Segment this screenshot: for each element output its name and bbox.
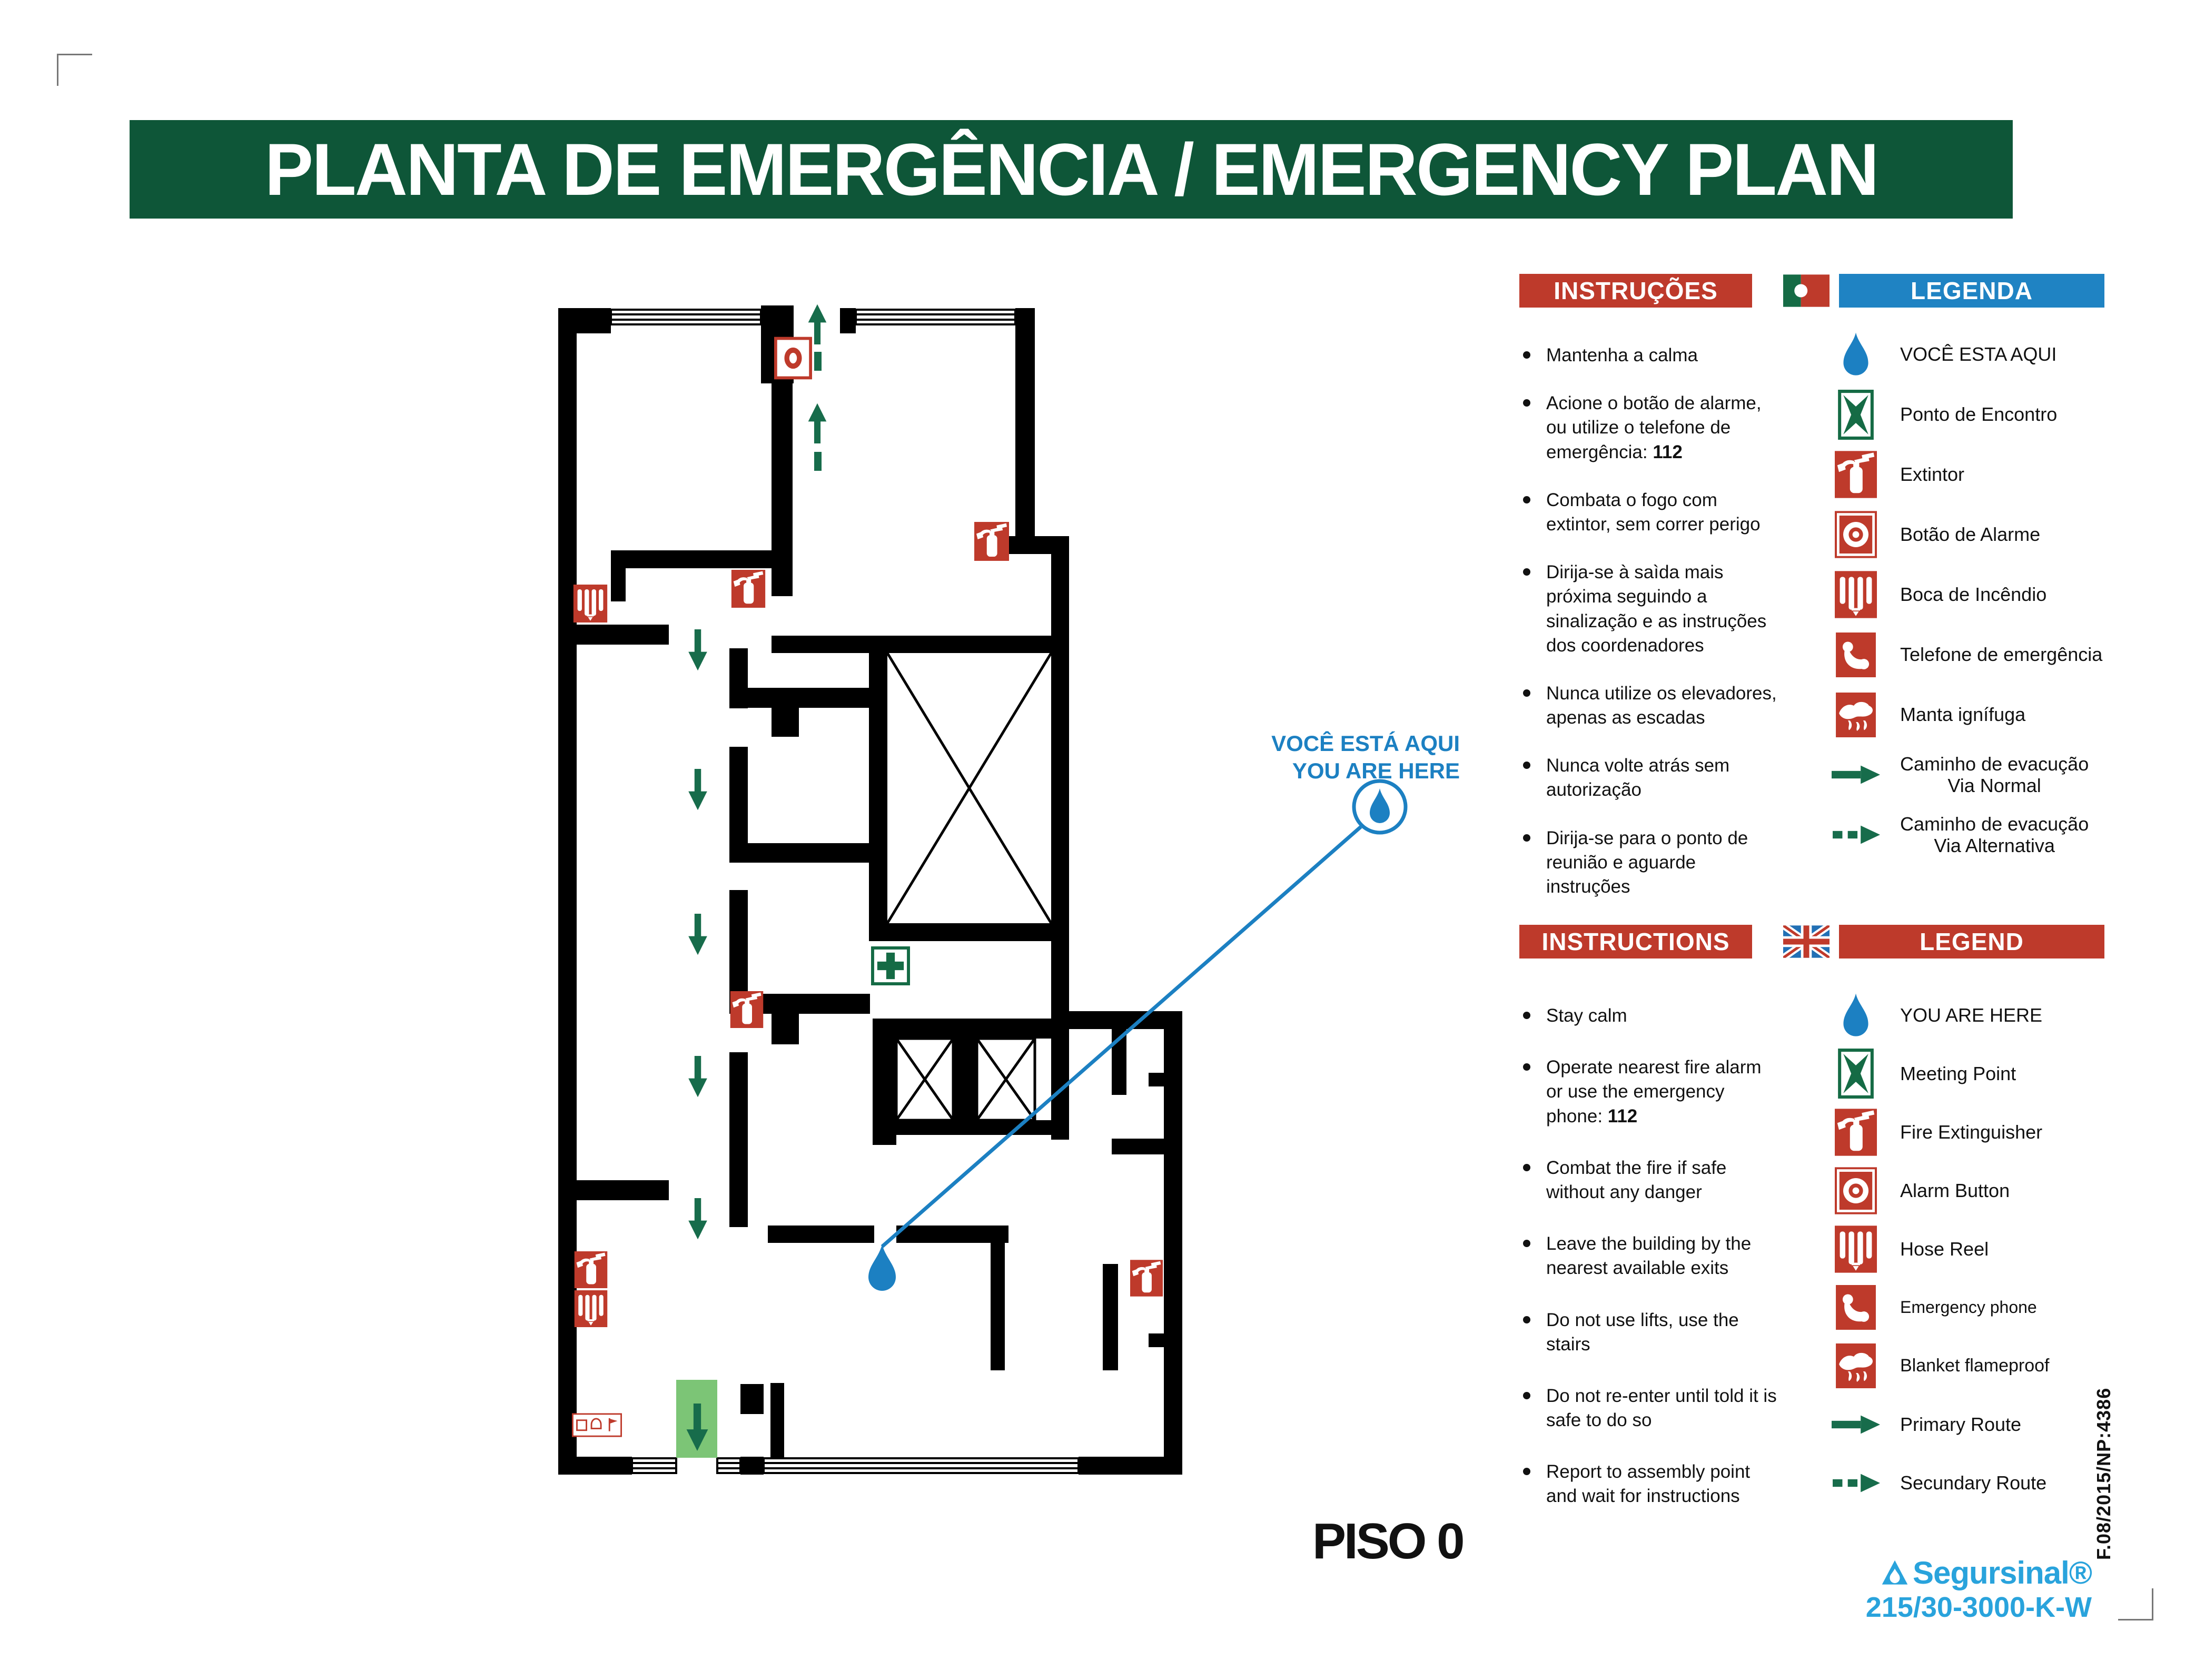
primary-route-arrow-icon xyxy=(1832,765,1880,784)
secondary-route-arrow-icon xyxy=(1832,825,1880,844)
secondary-route-arrow-icon xyxy=(1832,1474,1880,1493)
list-item: Stay calm xyxy=(1523,1004,1777,1028)
alarm-button-icon xyxy=(776,339,810,378)
instructions-pt-list: Mantenha a calma Acione o botão de alarm… xyxy=(1523,343,1777,923)
emergency-plan-poster: PLANTA DE EMERGÊNCIA / EMERGENCY PLAN xyxy=(0,0,2205,1680)
list-item: Do not re-enter until told it is safe to… xyxy=(1523,1384,1777,1432)
emergency-phone-icon xyxy=(1832,633,1880,677)
list-item: Acione o botão de alarme, ou utilize o t… xyxy=(1523,391,1777,465)
bullet-icon xyxy=(1523,834,1530,842)
list-item: Do not use lifts, use the stairs xyxy=(1523,1308,1777,1357)
bullet-icon xyxy=(1523,1240,1530,1247)
legend-pt-header: LEGENDA xyxy=(1839,274,2104,308)
list-item: Mantenha a calma xyxy=(1523,343,1777,368)
floor-label: PISO 0 xyxy=(1312,1513,1462,1570)
document-reference: F.08/2015/NP:4386 xyxy=(2093,1388,2115,1560)
legend-row: Telefone de emergência xyxy=(1832,625,2137,685)
fire-extinguisher-icon xyxy=(974,522,1009,561)
primary-route-arrow-icon xyxy=(1832,1415,1880,1434)
you-are-here-marker xyxy=(868,1244,896,1291)
bullet-icon xyxy=(1523,1063,1530,1071)
windows xyxy=(611,310,1079,1473)
alarm-button-icon xyxy=(1832,1167,1880,1214)
meeting-point-icon xyxy=(1832,390,1880,440)
bullet-icon xyxy=(1523,1012,1530,1019)
list-item: Combat the fire if safe without any dang… xyxy=(1523,1156,1777,1204)
bullet-icon xyxy=(1523,399,1530,407)
list-item: Combata o fogo com extintor, sem correr … xyxy=(1523,488,1777,537)
brand-block: Segursinal® 215/30-3000-K-W xyxy=(1864,1555,2092,1624)
fire-extinguisher-icon xyxy=(575,1251,608,1288)
legend-en-header: LEGEND xyxy=(1839,925,2104,958)
legend-row: Fire Extinguisher xyxy=(1832,1103,2137,1161)
legend-en-list: YOU ARE HERE Meeting Point Fire Extingui… xyxy=(1832,986,2137,1512)
fire-extinguisher-icon xyxy=(731,570,765,608)
floor-plan: VOCÊ ESTÁ AQUI YOU ARE HERE xyxy=(553,300,1469,1506)
first-aid-icon xyxy=(873,948,908,984)
list-item: Nunca utilize os elevadores, apenas as e… xyxy=(1523,681,1777,730)
legend-row: Caminho de evacuçãoVia Alternativa xyxy=(1832,805,2137,865)
bullet-icon xyxy=(1523,568,1530,576)
alarm-button-icon xyxy=(1832,511,1880,558)
alarm-devices-panel-icon xyxy=(572,1414,621,1436)
legend-row: VOCÊ ESTA AQUI xyxy=(1832,324,2137,384)
callout-line1: VOCÊ ESTÁ AQUI xyxy=(1271,730,1460,756)
evacuation-route-arrows xyxy=(687,304,827,1451)
legend-row: Alarm Button xyxy=(1832,1161,2137,1220)
list-item: Leave the building by the nearest availa… xyxy=(1523,1232,1777,1280)
list-item: Dirija-se à saìda mais próxima seguindo … xyxy=(1523,560,1777,658)
legend-row: Secundary Route xyxy=(1832,1454,2137,1512)
instructions-en-list: Stay calm Operate nearest fire alarm or … xyxy=(1523,1004,1777,1536)
page-title: PLANTA DE EMERGÊNCIA / EMERGENCY PLAN xyxy=(130,120,2013,219)
legend-row: Ponto de Encontro xyxy=(1832,384,2137,444)
you-are-here-drop-icon xyxy=(1832,992,1880,1039)
stairwell-shaft xyxy=(887,653,1051,923)
legend-row: YOU ARE HERE xyxy=(1832,986,2137,1044)
walls xyxy=(558,305,1182,1475)
uk-flag-icon xyxy=(1783,925,1830,958)
legend-row: Extintor xyxy=(1832,444,2137,505)
legend-row: Boca de Incêndio xyxy=(1832,565,2137,625)
instructions-en-header: INSTRUCTIONS xyxy=(1519,925,1752,958)
bullet-icon xyxy=(1523,1468,1530,1475)
fire-blanket-icon xyxy=(1832,693,1880,737)
brand-name: Segursinal® xyxy=(1913,1555,2092,1591)
legend-row: Primary Route xyxy=(1832,1395,2137,1454)
hose-reel-icon xyxy=(1832,571,1880,618)
bullet-icon xyxy=(1523,496,1530,503)
legend-row: Caminho de evacuçãoVia Normal xyxy=(1832,745,2137,805)
bullet-icon xyxy=(1523,1164,1530,1171)
legend-pt-list: VOCÊ ESTA AQUI Ponto de Encontro Extinto… xyxy=(1832,324,2137,865)
hose-reel-icon xyxy=(574,585,607,622)
callout-line2: YOU ARE HERE xyxy=(1292,758,1460,783)
instructions-pt-header: INSTRUÇÕES xyxy=(1519,274,1752,308)
legend-row: Manta ignífuga xyxy=(1832,685,2137,745)
fire-extinguisher-icon xyxy=(730,991,764,1028)
hose-reel-icon xyxy=(1832,1226,1880,1273)
fire-extinguisher-icon xyxy=(1832,1109,1880,1156)
list-item: Dirija-se para o ponto de reunião e agua… xyxy=(1523,826,1777,900)
bullet-icon xyxy=(1523,689,1530,697)
crop-mark-bottom-right xyxy=(2118,1588,2153,1620)
bullet-icon xyxy=(1523,351,1530,359)
list-item: Report to assembly point and wait for in… xyxy=(1523,1460,1777,1508)
brand-model: 215/30-3000-K-W xyxy=(1864,1591,2092,1624)
legend-row: Botão de Alarme xyxy=(1832,505,2137,565)
you-are-here-drop-icon xyxy=(1832,331,1880,378)
hose-reel-icon xyxy=(575,1290,608,1327)
list-item: Operate nearest fire alarm or use the em… xyxy=(1523,1055,1777,1129)
meeting-point-icon xyxy=(1832,1049,1880,1099)
emergency-phone-icon xyxy=(1832,1285,1880,1330)
segursinal-logo-icon xyxy=(1881,1559,1909,1587)
portugal-flag-icon xyxy=(1783,274,1830,308)
fire-blanket-icon xyxy=(1832,1343,1880,1388)
legend-row: Emergency phone xyxy=(1832,1278,2137,1337)
list-item: Nunca volte atrás sem autorização xyxy=(1523,754,1777,802)
fire-extinguisher-icon xyxy=(1130,1260,1163,1296)
legend-row: Hose Reel xyxy=(1832,1220,2137,1278)
crop-mark-top-left xyxy=(57,54,92,86)
legend-row: Blanket flameproof xyxy=(1832,1337,2137,1395)
bullet-icon xyxy=(1523,1392,1530,1399)
bullet-icon xyxy=(1523,762,1530,769)
bullet-icon xyxy=(1523,1316,1530,1323)
legend-row: Meeting Point xyxy=(1832,1044,2137,1103)
fire-extinguisher-icon xyxy=(1832,451,1880,498)
